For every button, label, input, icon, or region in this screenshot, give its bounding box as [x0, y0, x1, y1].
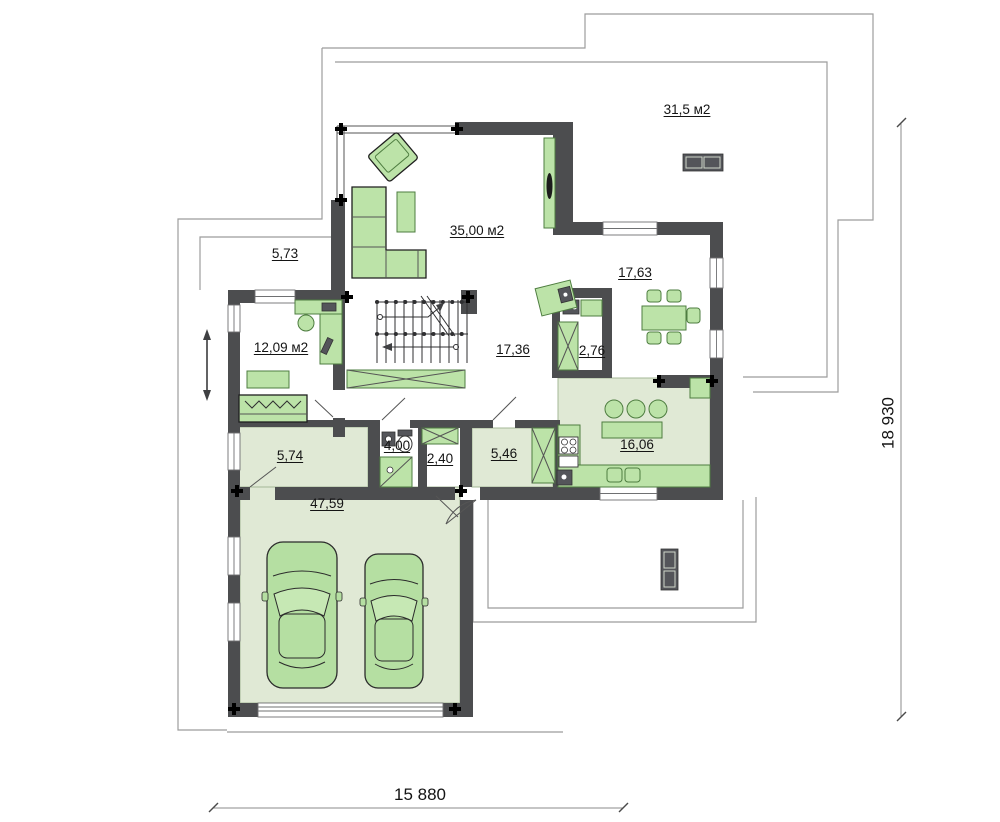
armchair [368, 132, 419, 182]
terrace-bench [683, 154, 723, 171]
entry-closet [422, 428, 458, 444]
desk-chair [298, 315, 314, 331]
car [262, 542, 342, 688]
bar-stool [649, 400, 667, 418]
area-label-living-room: 35,00 м2 [450, 224, 504, 238]
dresser [247, 371, 289, 388]
entrance-arrow [203, 329, 211, 401]
floor-plan-drawing [0, 0, 1000, 822]
car [360, 554, 428, 688]
area-label-vestibule: 5,46 [491, 447, 517, 461]
area-label-dining-room: 17,63 [618, 266, 652, 280]
dimension-width: 15 880 [394, 786, 446, 803]
wardrobe [347, 370, 465, 388]
stove [559, 437, 578, 454]
dining-chair [647, 290, 661, 302]
area-label-upper-terrace: 31,5 м2 [664, 103, 711, 117]
area-label-study: 12,09 м2 [254, 341, 308, 355]
vestibule-closet [532, 428, 555, 483]
dining-chair [647, 332, 661, 344]
furniture [239, 132, 723, 688]
shower [380, 457, 412, 487]
area-label-entry: 2,40 [427, 452, 453, 466]
dining-chair [667, 290, 681, 302]
area-label-laundry: 5,74 [277, 449, 303, 463]
garden-bench [661, 549, 678, 590]
dining-chair [667, 332, 681, 344]
area-label-pantry: 2,76 [579, 344, 605, 358]
oven [559, 456, 578, 467]
area-label-kitchen: 16,06 [620, 438, 654, 452]
fireplace-insert [547, 173, 553, 199]
staircase [375, 296, 468, 363]
dining-table [642, 306, 686, 330]
area-label-left-balcony: 5,73 [272, 247, 298, 261]
area-label-hall: 17,36 [496, 343, 530, 357]
bar-stool [605, 400, 623, 418]
pantry-counter [581, 300, 602, 316]
small-sofa [239, 395, 307, 422]
dimension-height: 18 930 [880, 397, 897, 449]
dining-chair [687, 308, 700, 323]
kitchen-island [602, 422, 662, 438]
area-label-garage: 47,59 [310, 497, 344, 511]
area-label-bathroom: 4,00 [384, 439, 410, 453]
kitchen-bench [607, 468, 622, 482]
pantry-closet [558, 322, 578, 370]
toilet-tank [398, 430, 412, 436]
floor-plan-page: 31,5 м2 35,00 м2 5,73 17,63 12,09 м2 17,… [0, 0, 1000, 822]
bar-stool [627, 400, 645, 418]
kitchen-bench [625, 468, 640, 482]
coffee-table [397, 192, 415, 232]
monitor [322, 303, 336, 311]
